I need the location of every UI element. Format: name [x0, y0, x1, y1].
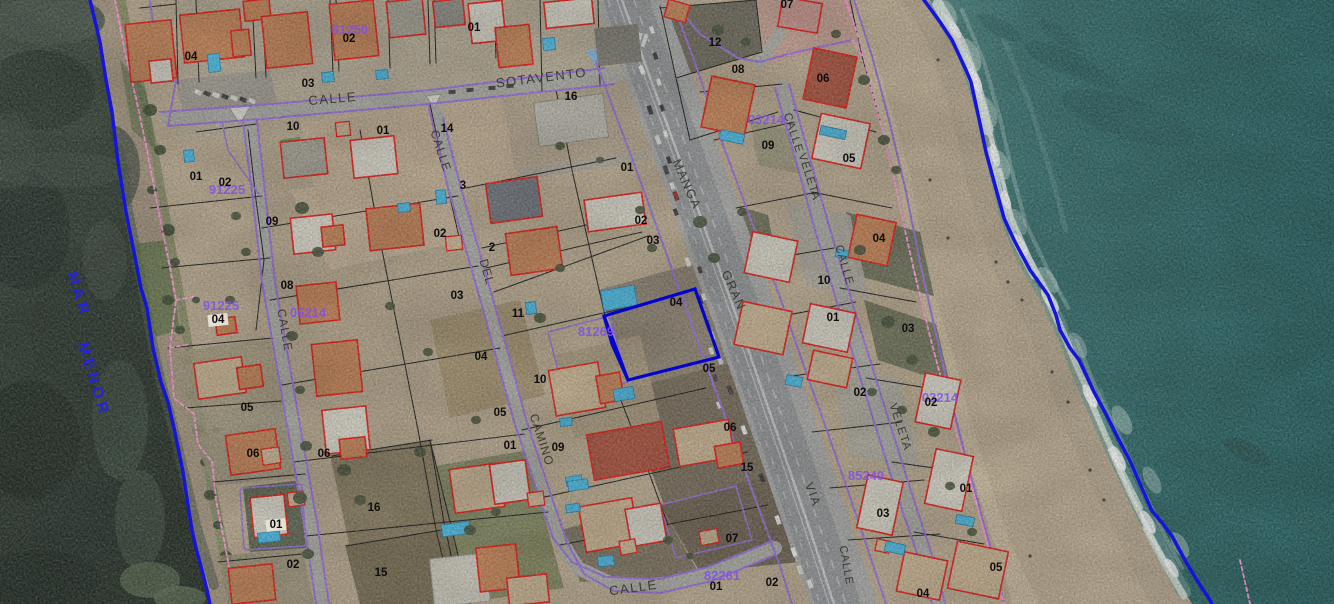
svg-text:05: 05: [703, 363, 716, 375]
svg-text:01: 01: [270, 519, 283, 531]
svg-text:2: 2: [489, 242, 495, 254]
svg-text:12: 12: [709, 37, 722, 49]
svg-text:14: 14: [441, 123, 454, 135]
svg-text:03: 03: [451, 290, 464, 302]
svg-text:91225: 91225: [203, 298, 239, 313]
svg-text:03214: 03214: [748, 112, 785, 127]
svg-text:04: 04: [670, 297, 683, 309]
svg-text:02: 02: [925, 397, 938, 409]
svg-text:07: 07: [781, 0, 794, 11]
svg-text:03: 03: [647, 235, 660, 247]
svg-text:03: 03: [902, 323, 915, 335]
svg-text:04: 04: [873, 233, 886, 245]
svg-text:03: 03: [877, 508, 890, 520]
svg-text:06214: 06214: [290, 305, 327, 320]
svg-text:05: 05: [241, 402, 254, 414]
svg-text:02: 02: [219, 177, 232, 189]
svg-text:09: 09: [266, 216, 279, 228]
svg-text:05: 05: [990, 562, 1003, 574]
svg-text:06: 06: [817, 73, 830, 85]
svg-text:10: 10: [287, 121, 300, 133]
svg-text:09: 09: [762, 140, 775, 152]
svg-text:07: 07: [726, 533, 739, 545]
svg-text:04: 04: [185, 51, 198, 63]
svg-text:04: 04: [212, 314, 225, 326]
svg-text:05: 05: [843, 153, 856, 165]
svg-text:08: 08: [281, 280, 294, 292]
svg-text:02: 02: [635, 215, 648, 227]
svg-text:85240: 85240: [848, 468, 884, 483]
svg-text:81269: 81269: [578, 324, 614, 339]
svg-text:01: 01: [377, 125, 390, 137]
svg-text:05: 05: [494, 407, 507, 419]
svg-text:16: 16: [368, 502, 381, 514]
svg-text:02: 02: [343, 33, 356, 45]
svg-text:15: 15: [375, 567, 388, 579]
svg-text:09: 09: [552, 442, 565, 454]
svg-text:16: 16: [565, 91, 578, 103]
svg-text:06: 06: [318, 448, 331, 460]
svg-text:10: 10: [818, 275, 831, 287]
svg-text:03: 03: [302, 78, 315, 90]
svg-text:04: 04: [475, 351, 488, 363]
svg-text:01: 01: [827, 312, 840, 324]
svg-text:01: 01: [504, 440, 517, 452]
svg-text:02: 02: [854, 387, 867, 399]
svg-text:06: 06: [724, 422, 737, 434]
svg-text:10: 10: [534, 374, 547, 386]
svg-text:06: 06: [247, 448, 260, 460]
svg-text:02: 02: [287, 559, 300, 571]
svg-text:3: 3: [460, 180, 466, 192]
svg-text:01: 01: [960, 483, 973, 495]
svg-text:01: 01: [710, 581, 723, 593]
svg-text:08: 08: [732, 64, 745, 76]
svg-text:11: 11: [512, 308, 525, 320]
svg-text:15: 15: [741, 462, 754, 474]
svg-text:02: 02: [766, 577, 779, 589]
svg-text:01: 01: [468, 22, 481, 34]
svg-text:01: 01: [621, 162, 634, 174]
svg-text:02: 02: [434, 228, 447, 240]
svg-text:01: 01: [190, 171, 203, 183]
svg-text:04: 04: [917, 588, 930, 600]
